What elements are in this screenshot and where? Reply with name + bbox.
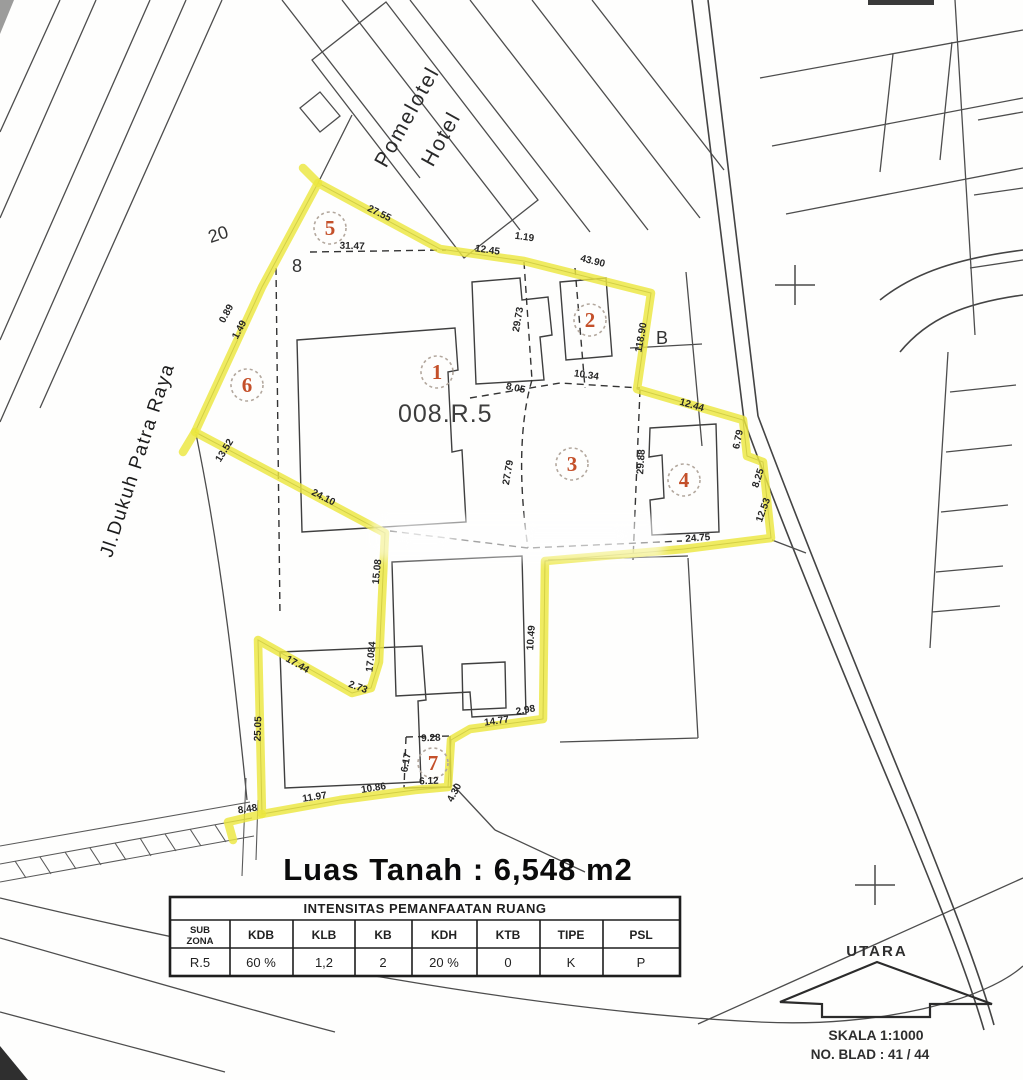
zone-number: 1 — [432, 360, 443, 384]
zone-number: 5 — [325, 216, 336, 240]
table-header-cell: PSL — [629, 928, 652, 942]
intensity-table: INTENSITAS PEMANFAATAN RUANG SUB ZONA KD… — [170, 897, 680, 976]
area-title-text: Luas Tanah : 6,548 m2 — [283, 852, 633, 887]
dimension-label: 25.05 — [253, 716, 265, 742]
lot-8-label: 8 — [292, 256, 302, 276]
dimension-label: 10.49 — [525, 625, 538, 651]
table-cell: R.5 — [190, 955, 210, 970]
table-cell: 0 — [504, 955, 511, 970]
site-plan-scan: 1 2 3 4 5 6 7 27.55 31.47 12.45 1.19 43.… — [0, 0, 1023, 1080]
zone-number: 4 — [679, 468, 690, 492]
zone-number: 6 — [242, 373, 253, 397]
table-header-subzona-2: ZONA — [187, 936, 214, 947]
parcel-code-label: 008.R.5 — [398, 400, 493, 428]
watermark — [372, 516, 664, 560]
table-cell: 20 % — [429, 955, 459, 970]
table-title: INTENSITAS PEMANFAATAN RUANG — [304, 901, 547, 916]
zone-number: 3 — [567, 452, 578, 476]
dimension-label: 24.75 — [685, 532, 711, 545]
dimension-label: 9.28 — [421, 733, 441, 745]
table-cell: K — [567, 955, 576, 970]
table-header-cell: KDH — [431, 928, 457, 942]
north-label: UTARA — [846, 943, 907, 960]
dimension-label: 29.88 — [635, 449, 648, 475]
dimension-label: 31.47 — [339, 241, 365, 253]
zone-number: 2 — [585, 308, 596, 332]
table-cell: 1,2 — [315, 955, 333, 970]
table-header-cell: TIPE — [558, 928, 585, 942]
scale-label: SKALA 1:1000 — [828, 1027, 923, 1043]
table-cell: 2 — [379, 955, 386, 970]
table-header-cell: KTB — [496, 928, 521, 942]
table-header-cell: KDB — [248, 928, 274, 942]
block-b-label: B — [656, 328, 668, 348]
site-plan-map: 1 2 3 4 5 6 7 27.55 31.47 12.45 1.19 43.… — [0, 0, 1023, 1080]
table-cell: P — [637, 955, 646, 970]
zone-number: 7 — [428, 751, 439, 775]
table-cell: 60 % — [246, 955, 276, 970]
dimension-label: 6.12 — [419, 776, 439, 788]
table-header-subzona-1: SUB — [190, 925, 210, 936]
sheet-number-label: NO. BLAD : 41 / 44 — [811, 1047, 930, 1062]
table-header-cell: KLB — [312, 928, 337, 942]
table-header-cell: KB — [374, 928, 392, 942]
